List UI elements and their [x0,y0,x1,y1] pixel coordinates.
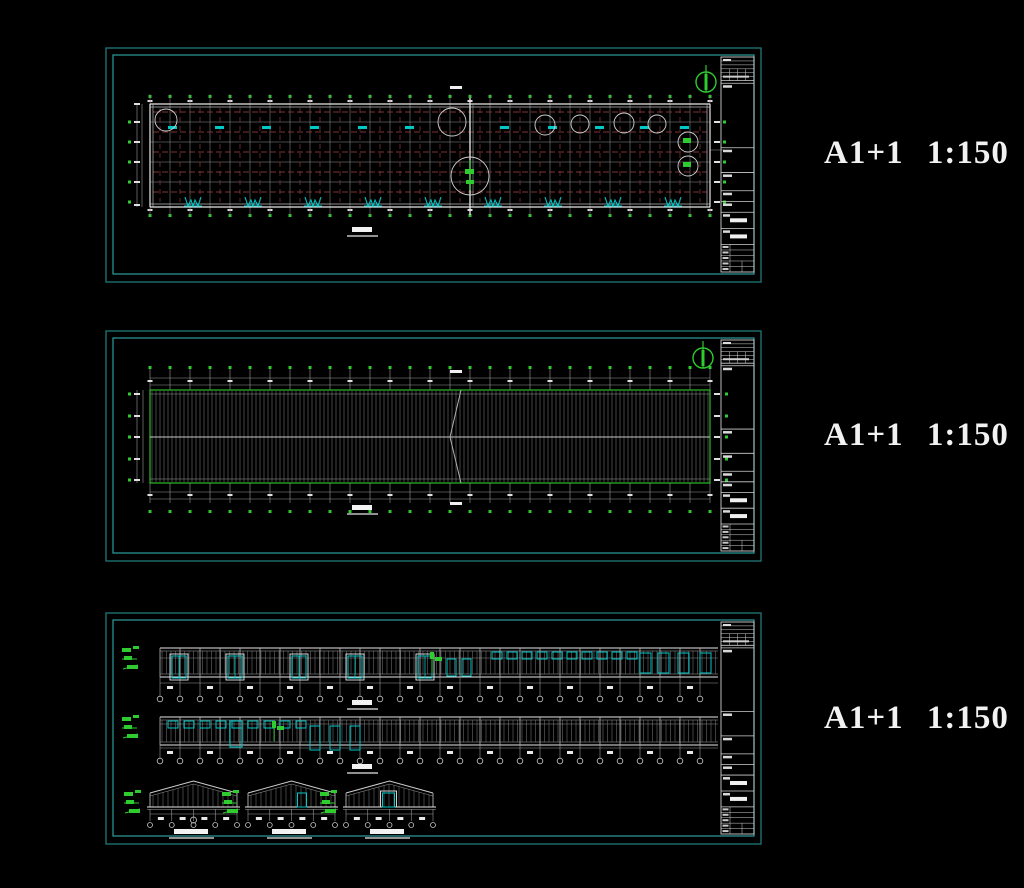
cad-drawing-canvas: A1+1 1:150 A1+1 1:150 A1+1 1:150 [0,0,1024,888]
north-arrow-icon [693,341,713,368]
gable-title-mark [365,829,410,838]
gable-openings [298,793,307,807]
sheet-scale-label-2: A1+1 1:150 [824,417,1009,454]
gable-openings [381,791,397,807]
gable-title-mark [267,829,312,838]
cyan-tags [168,126,689,129]
sheet-border [106,48,761,282]
south-elevation-title-mark [347,700,378,709]
roof-outline [150,390,710,483]
sheet-scale-label-1: A1+1 1:150 [824,135,1009,172]
south-elevation-dimensions [157,677,718,702]
elevation-level-marker [122,715,139,738]
door-symbols [184,197,682,206]
elevation-level-marker [124,790,141,813]
roof-plan-sheet [105,330,762,562]
elevations-sheet [105,612,762,845]
gable-dimensions [344,809,436,828]
dimension-lines [128,86,726,217]
plan-title-mark [347,227,378,236]
title-block [721,57,754,272]
north-elevation-title-mark [347,764,378,773]
north-arrow-icon [696,65,716,92]
north-elevation [160,717,718,745]
elevation-level-marker [122,646,139,669]
north-elevation-dimensions [157,745,718,764]
gable-elevation [343,781,436,810]
title-block [721,622,754,834]
sheet-scale-label-3: A1+1 1:150 [824,700,1009,737]
roof-title-mark [347,505,378,514]
gable-title-mark [169,829,214,838]
title-block [721,340,754,551]
floor-plan-sheet [105,47,762,283]
north-elevation-openings [168,721,360,750]
